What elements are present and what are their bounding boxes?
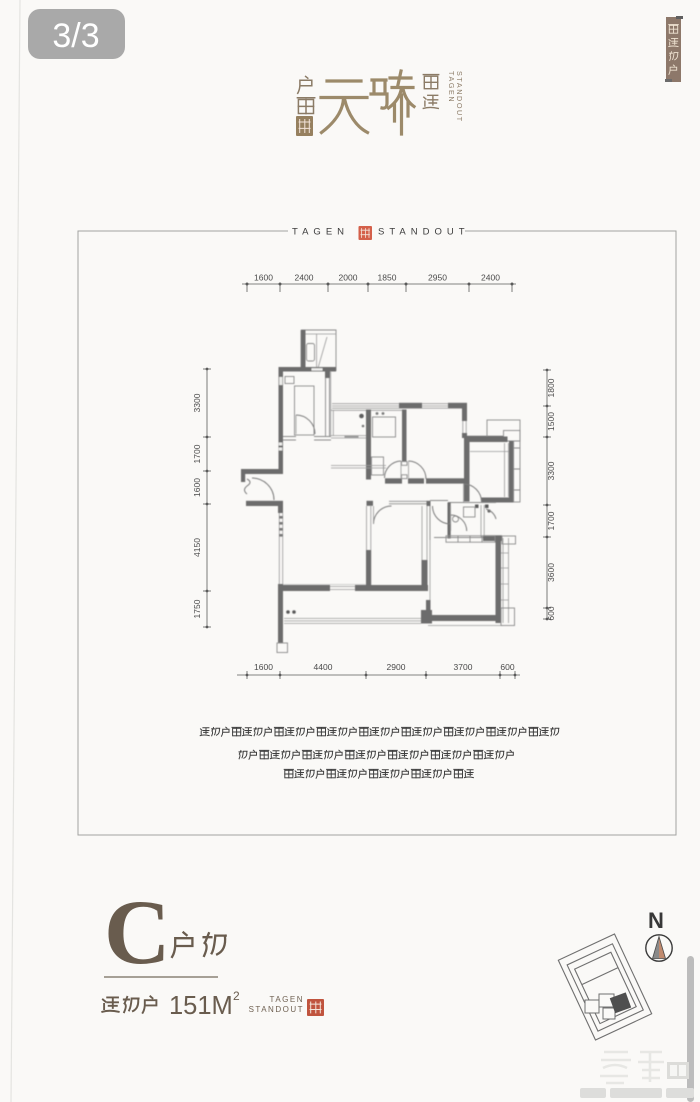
svg-text:TAGEN: TAGEN xyxy=(292,227,349,238)
svg-text:1600: 1600 xyxy=(192,478,202,497)
svg-text:2400: 2400 xyxy=(481,273,500,283)
svg-text:1750: 1750 xyxy=(192,599,202,618)
svg-text:1850: 1850 xyxy=(378,273,397,283)
svg-text:3600: 3600 xyxy=(546,563,556,582)
svg-text:600: 600 xyxy=(500,662,514,672)
svg-text:STANDOUT: STANDOUT xyxy=(378,227,470,238)
svg-text:1600: 1600 xyxy=(254,273,273,283)
svg-text:STANDOUT: STANDOUT xyxy=(455,71,464,123)
svg-text:TAGEN: TAGEN xyxy=(270,995,304,1004)
svg-text:4150: 4150 xyxy=(192,538,202,557)
svg-text:1600: 1600 xyxy=(254,662,273,672)
svg-text:1700: 1700 xyxy=(192,444,202,463)
svg-text:600: 600 xyxy=(546,606,556,620)
svg-text:3/3: 3/3 xyxy=(52,17,99,55)
svg-text:151M: 151M xyxy=(169,992,233,1020)
svg-text:4400: 4400 xyxy=(314,662,333,672)
svg-text:N: N xyxy=(648,908,664,933)
svg-text:C: C xyxy=(104,881,170,983)
svg-text:1500: 1500 xyxy=(546,412,556,431)
svg-text:2900: 2900 xyxy=(387,662,406,672)
svg-text:TAGEN: TAGEN xyxy=(447,71,456,103)
svg-text:2400: 2400 xyxy=(295,273,314,283)
svg-text:3300: 3300 xyxy=(546,461,556,480)
svg-text:1800: 1800 xyxy=(546,378,556,397)
svg-text:2000: 2000 xyxy=(339,273,358,283)
svg-text:3300: 3300 xyxy=(192,393,202,412)
svg-text:1700: 1700 xyxy=(546,511,556,530)
svg-text:3700: 3700 xyxy=(454,662,473,672)
svg-text:STANDOUT: STANDOUT xyxy=(249,1005,304,1014)
svg-text:2: 2 xyxy=(233,989,240,1003)
svg-text:2950: 2950 xyxy=(428,273,447,283)
